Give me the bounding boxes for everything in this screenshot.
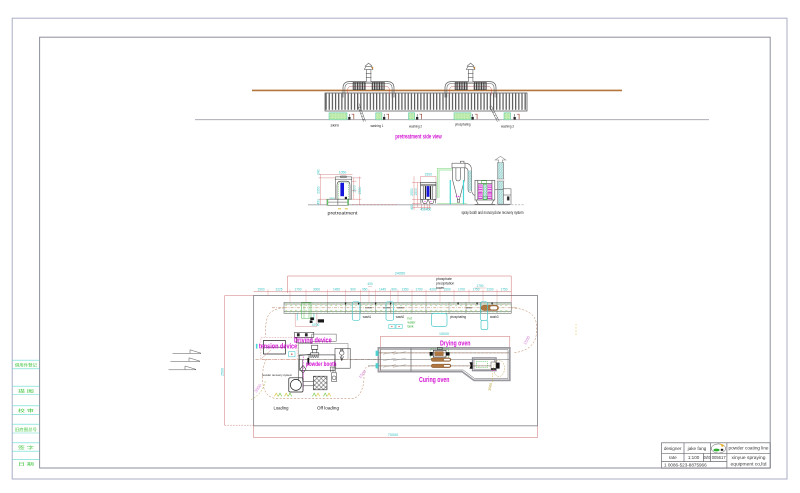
svg-text:washing 3: washing 3: [501, 124, 514, 128]
svg-text:24050: 24050: [395, 272, 406, 276]
svg-text:15000: 15000: [439, 332, 449, 336]
svg-text:1750: 1750: [472, 288, 479, 292]
svg-text:1700: 1700: [294, 288, 301, 292]
svg-text:1750: 1750: [500, 288, 507, 292]
svg-text:校 审: 校 审: [18, 407, 34, 413]
svg-text:skim: skim: [331, 123, 340, 127]
svg-text:Curing oven: Curing oven: [419, 375, 450, 384]
svg-text:1:100: 1:100: [688, 455, 700, 460]
svg-text:1445: 1445: [379, 288, 386, 292]
svg-text:powder recovery system: powder recovery system: [262, 373, 292, 377]
svg-text:1700: 1700: [458, 288, 465, 292]
svg-text:240: 240: [317, 169, 321, 175]
svg-text:4700: 4700: [312, 323, 320, 327]
svg-text:phosphating: phosphating: [450, 315, 466, 319]
svg-text:Off loading: Off loading: [317, 406, 340, 411]
svg-text:washing 2: washing 2: [409, 124, 422, 128]
svg-text:400: 400: [367, 282, 373, 286]
svg-text:1750: 1750: [476, 284, 483, 288]
svg-text:06/50: 06/50: [704, 455, 711, 460]
svg-text:1500: 1500: [353, 185, 357, 193]
svg-text:2225: 2225: [275, 288, 282, 292]
svg-text:designer: designer: [664, 446, 682, 451]
svg-text:950: 950: [362, 288, 368, 292]
svg-text:1050: 1050: [339, 171, 347, 175]
svg-text:签 字: 签 字: [18, 444, 34, 450]
svg-text:2350: 2350: [316, 186, 320, 194]
svg-text:旧底图总号: 旧底图总号: [15, 426, 37, 432]
svg-text:450: 450: [426, 208, 432, 212]
svg-text:1450: 1450: [333, 288, 340, 292]
svg-text:借用件登记: 借用件登记: [15, 361, 37, 367]
svg-text:900: 900: [350, 288, 356, 292]
svg-text:powder coating line: powder coating line: [729, 446, 769, 451]
svg-text:jake fang: jake fang: [687, 446, 707, 451]
svg-text:washing 1: washing 1: [371, 124, 384, 128]
svg-text:1 0086-523-8875966: 1 0086-523-8875966: [664, 462, 707, 467]
svg-text:2350: 2350: [358, 187, 362, 195]
svg-text:1350: 1350: [401, 288, 408, 292]
svg-text:equipment co,ltd: equipment co,ltd: [731, 462, 767, 467]
svg-text:wash3: wash3: [490, 315, 499, 319]
svg-text:70000: 70000: [388, 433, 399, 437]
svg-text:1500: 1500: [443, 288, 450, 292]
svg-text:spray booth and monocyclone re: spray booth and monocyclone recovery sys…: [462, 210, 524, 215]
svg-text:描 图: 描 图: [18, 388, 34, 394]
svg-text:1700: 1700: [415, 288, 422, 292]
svg-text:2500: 2500: [221, 368, 225, 376]
svg-text:Loading: Loading: [274, 406, 290, 411]
svg-text:wash1: wash1: [363, 315, 372, 319]
svg-text:900: 900: [391, 288, 397, 292]
svg-text:005617: 005617: [712, 455, 726, 460]
svg-text:pretreatment side view: pretreatment side view: [395, 133, 442, 140]
svg-text:xinyue spraying: xinyue spraying: [732, 455, 766, 460]
svg-text:pretreatment: pretreatment: [328, 211, 359, 216]
svg-text:1500: 1500: [257, 288, 264, 292]
svg-text:tank: tank: [408, 325, 414, 329]
svg-text:precipitation: precipitation: [436, 281, 454, 285]
svg-text:phosphate: phosphate: [436, 277, 452, 281]
svg-text:3000: 3000: [313, 288, 320, 292]
svg-text:tension device: tension device: [259, 344, 297, 351]
svg-text:450: 450: [316, 199, 320, 205]
svg-text:1500: 1500: [414, 188, 418, 196]
svg-text:rate: rate: [669, 455, 677, 460]
svg-text:1500: 1500: [425, 172, 433, 176]
svg-text:450: 450: [410, 204, 414, 210]
svg-text:2200: 2200: [486, 288, 493, 292]
svg-text:wash2: wash2: [396, 315, 405, 319]
svg-text:phosphating: phosphating: [455, 123, 471, 127]
svg-text:Drying oven: Drying oven: [440, 338, 471, 347]
svg-text:日 期: 日 期: [18, 461, 34, 467]
svg-text:tower: tower: [436, 286, 445, 290]
